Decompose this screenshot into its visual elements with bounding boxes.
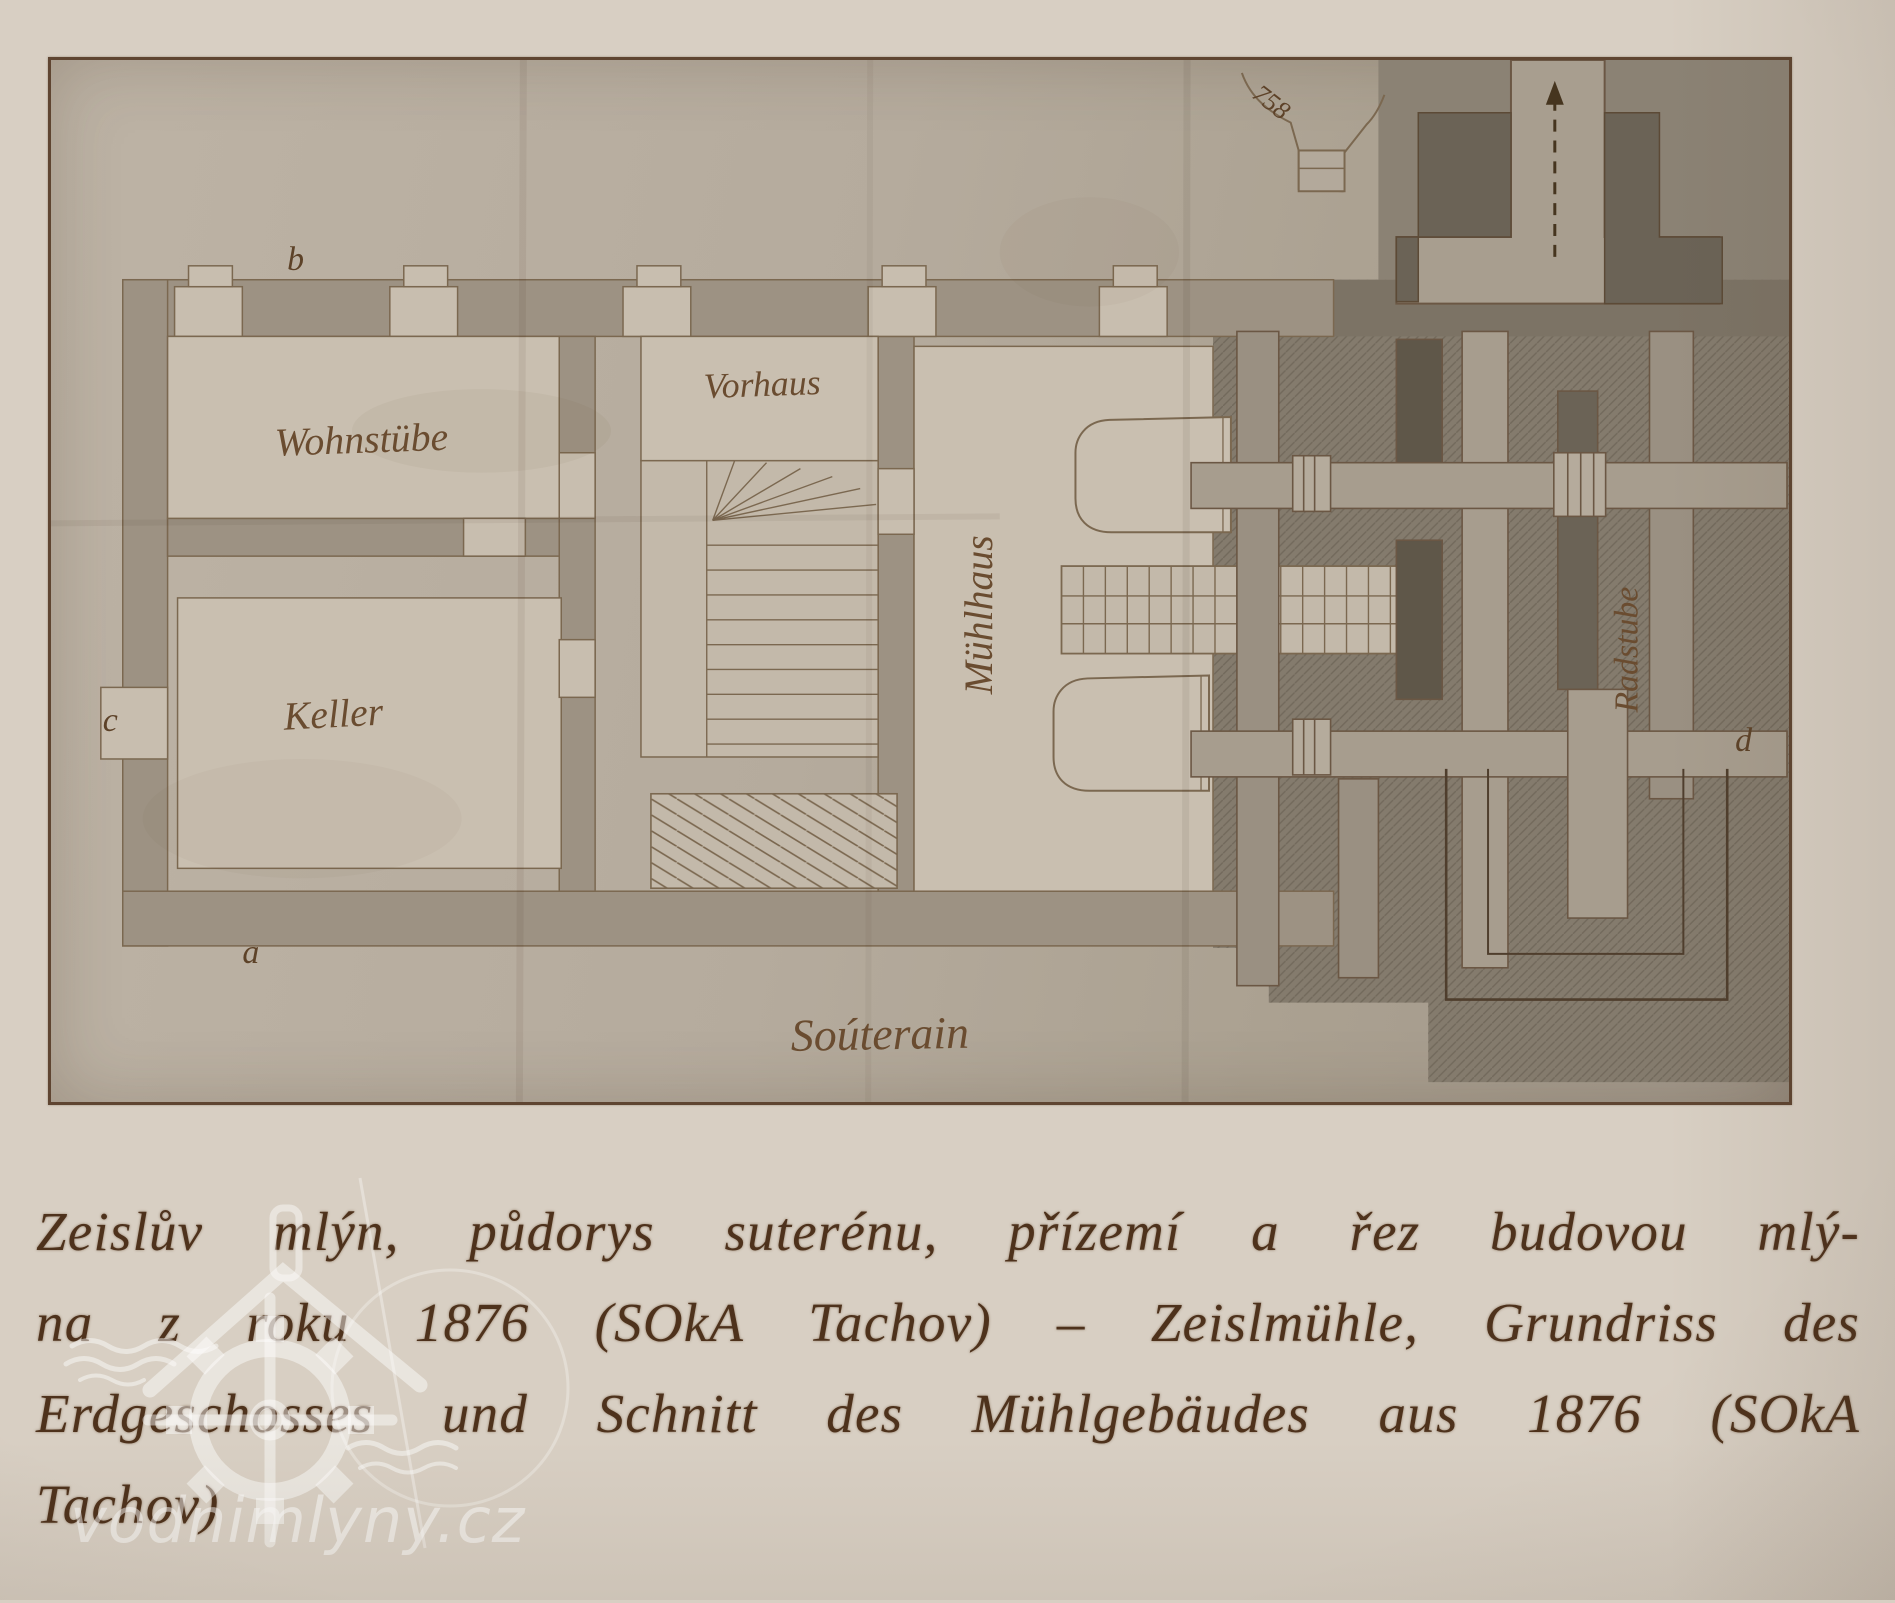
floor-plan-scan: 758 [48, 57, 1792, 1105]
label-keller: Keller [281, 690, 384, 739]
window-icon [390, 266, 458, 337]
book-page-photo: { "plan": { "rooms": { "wohnstube": "Woh… [0, 0, 1895, 1600]
timber-beam [1649, 331, 1693, 798]
axle-journal [1554, 453, 1606, 517]
marker-c: c [103, 702, 118, 739]
window-icon [868, 266, 936, 337]
door-opening [878, 469, 914, 535]
label-wohnstube: Wohnstübe [274, 415, 449, 465]
marker-b: b [287, 241, 304, 278]
label-muehlhaus: Mühlhaus [957, 535, 1001, 695]
caption-line: na z roku 1876 (SOkA Tachov) – Zeislmühl… [36, 1277, 1860, 1368]
door-opening [464, 518, 526, 556]
timber-beam [1237, 331, 1279, 985]
ladder [1062, 566, 1411, 653]
timber-beam [1191, 463, 1787, 509]
axle-journal [1293, 456, 1331, 512]
timber-beam [1462, 331, 1508, 967]
bottom-wall [123, 891, 1334, 946]
caption-line: Tachov) [36, 1459, 1860, 1550]
label-vorhaus: Vorhaus [703, 362, 821, 406]
caption-line: Erdgeschosses und Schnitt des Mühlgebäud… [36, 1368, 1860, 1459]
window-icon [623, 266, 691, 337]
intake-funnel: 758 [1242, 73, 1385, 191]
floor-plan-drawing: 758 [51, 60, 1789, 1102]
label-radstube: Radstube [1608, 587, 1645, 714]
label-souterrain: Soúterain [790, 1007, 969, 1061]
window-icon [175, 266, 243, 337]
marker-a: a [242, 934, 259, 971]
axle-journal [1293, 719, 1331, 775]
timber-beam [1339, 779, 1379, 978]
caption-line: Zeislův mlýn, půdorys suterénu, přízemí … [36, 1186, 1860, 1277]
door-opening [559, 640, 595, 698]
plan-number-label: 758 [1247, 79, 1296, 126]
timber-beam [1568, 689, 1628, 918]
hatched-ramp [651, 794, 897, 888]
stair-hall [641, 461, 878, 757]
marker-d: d [1735, 722, 1752, 759]
figure-caption: Zeislův mlýn, půdorys suterénu, přízemí … [36, 1186, 1860, 1550]
